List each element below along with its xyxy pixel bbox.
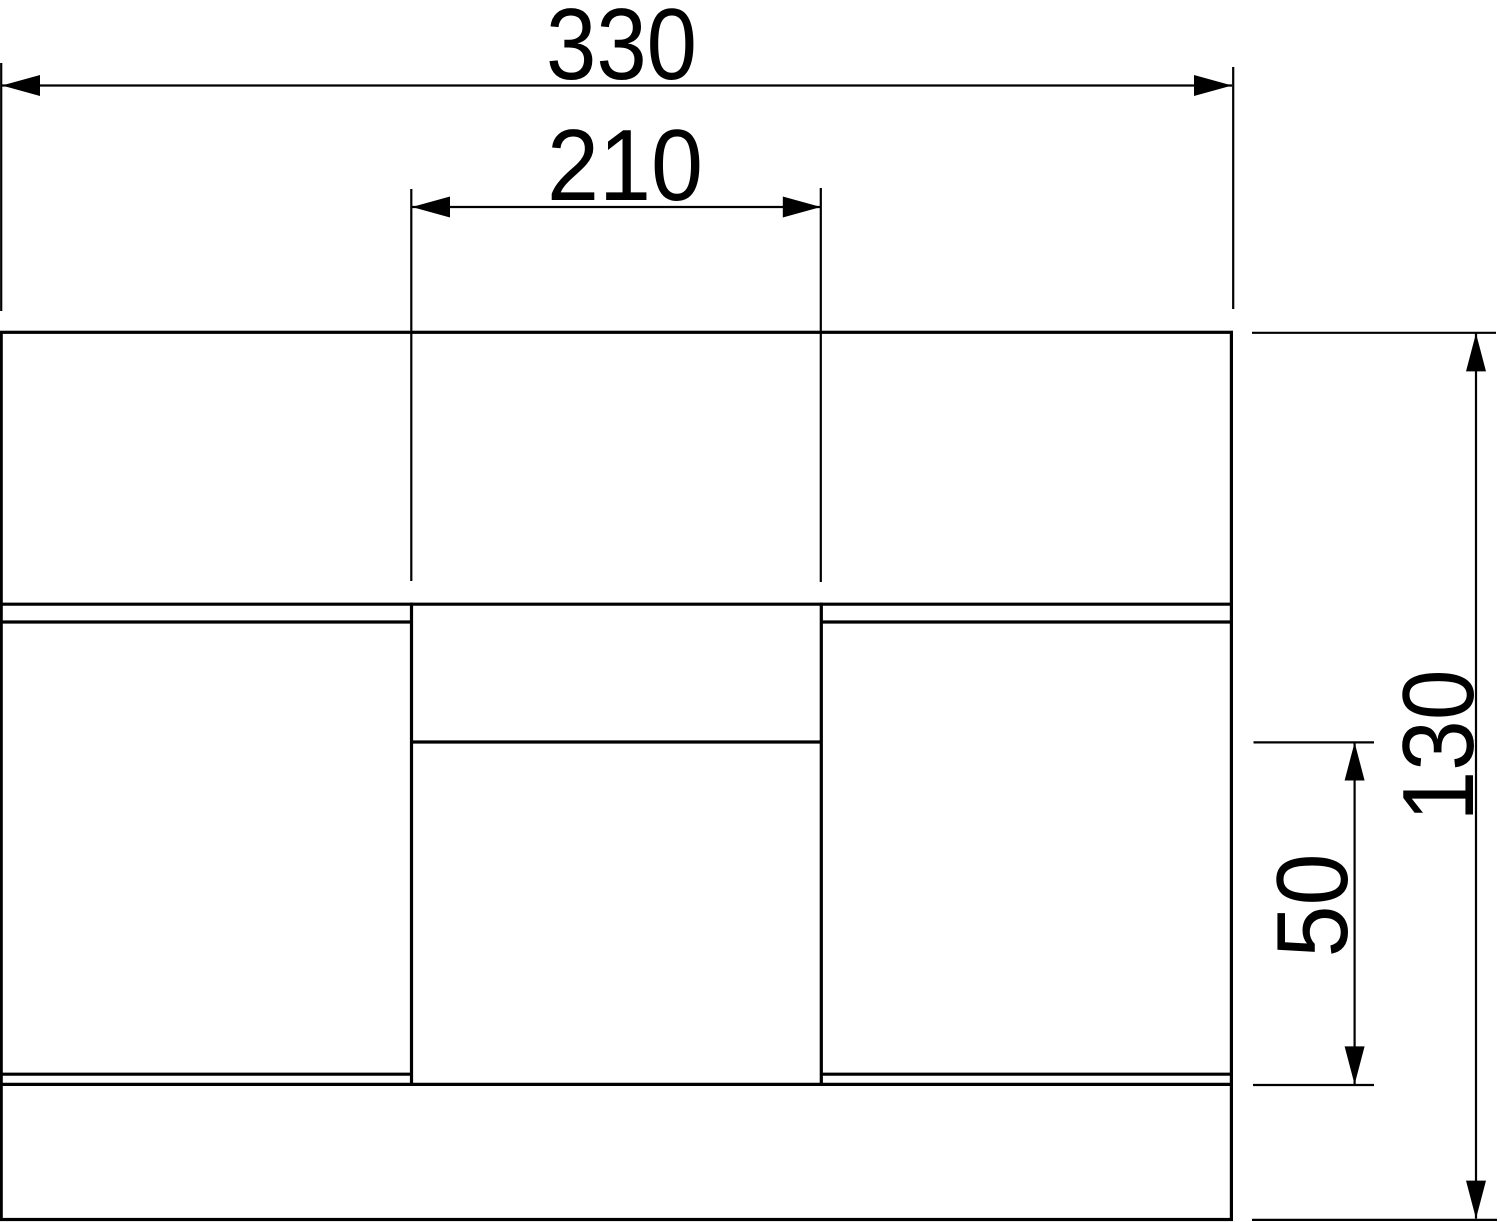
svg-text:210: 210 xyxy=(547,110,703,222)
svg-text:130: 130 xyxy=(1383,670,1495,822)
svg-text:50: 50 xyxy=(1257,854,1369,958)
